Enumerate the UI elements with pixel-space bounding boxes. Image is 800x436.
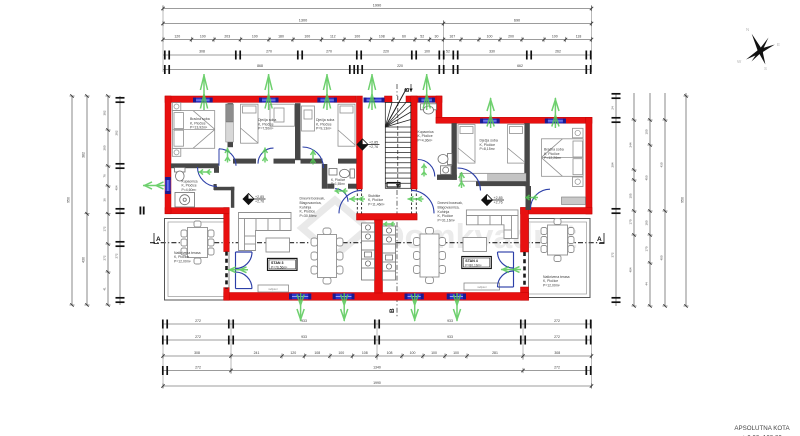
svg-text:272: 272 (195, 335, 201, 339)
svg-text:308: 308 (194, 351, 200, 355)
svg-text:270: 270 (326, 50, 332, 54)
svg-text:170: 170 (645, 246, 649, 251)
svg-text:N: N (746, 27, 749, 32)
svg-text:P=76,56m²: P=76,56m² (271, 265, 288, 269)
svg-text:P=11,46m²: P=11,46m² (368, 202, 385, 206)
svg-text:Kuhinja: Kuhinja (438, 210, 450, 214)
svg-text:P=7,50m²: P=7,50m² (258, 127, 274, 131)
svg-text:112: 112 (330, 34, 336, 38)
svg-text:404: 404 (115, 185, 119, 190)
svg-text:933: 933 (301, 335, 307, 339)
svg-text:100: 100 (487, 34, 493, 38)
svg-text:272: 272 (554, 335, 560, 339)
svg-text:950: 950 (681, 197, 685, 203)
svg-text:P=31,16m²: P=31,16m² (438, 219, 456, 223)
svg-text:P=8,15m²: P=8,15m² (480, 147, 496, 151)
svg-text:1990: 1990 (373, 4, 381, 8)
svg-text:282: 282 (115, 130, 119, 135)
svg-text:108: 108 (314, 351, 320, 355)
svg-text:308: 308 (199, 50, 205, 54)
svg-text:100: 100 (453, 351, 459, 355)
svg-text:382: 382 (103, 110, 107, 115)
svg-text:220: 220 (397, 64, 403, 68)
svg-text:STAN 3: STAN 3 (271, 261, 284, 265)
svg-text:272: 272 (115, 253, 119, 258)
svg-text:180: 180 (645, 220, 649, 225)
svg-text:220: 220 (383, 50, 389, 54)
svg-text:868: 868 (257, 64, 263, 68)
svg-text:1340: 1340 (373, 365, 381, 369)
svg-text:108: 108 (362, 351, 368, 355)
svg-text:P=4,36m²: P=4,36m² (418, 138, 434, 142)
svg-text:P=12,26m²: P=12,26m² (544, 156, 562, 160)
svg-text:60: 60 (402, 34, 406, 38)
svg-text:100: 100 (410, 351, 416, 355)
svg-text:180: 180 (278, 34, 284, 38)
svg-text:272: 272 (195, 365, 201, 369)
svg-text:100: 100 (338, 351, 344, 355)
svg-text:24: 24 (611, 106, 615, 110)
svg-text:P=9,13m²: P=9,13m² (316, 127, 332, 131)
svg-text:+2,76: +2,76 (494, 200, 503, 204)
svg-text:100: 100 (354, 34, 360, 38)
svg-text:172: 172 (103, 226, 107, 231)
svg-text:Dnevni boravak,: Dnevni boravak, (438, 201, 463, 205)
svg-text:P=80,16m²: P=80,16m² (465, 263, 482, 267)
svg-text:662: 662 (517, 64, 523, 68)
svg-text:P=12,00m²: P=12,00m² (543, 283, 561, 287)
svg-text:933: 933 (447, 335, 453, 339)
svg-text:294: 294 (611, 162, 615, 167)
svg-text:450: 450 (645, 175, 649, 180)
svg-text:P=13,92m²: P=13,92m² (190, 126, 208, 130)
svg-text:430: 430 (660, 162, 664, 167)
svg-text:108: 108 (387, 351, 393, 355)
svg-text:270: 270 (266, 50, 272, 54)
svg-text:+2,76: +2,76 (255, 199, 264, 203)
svg-text:272: 272 (554, 365, 560, 369)
svg-text:A: A (156, 236, 161, 243)
svg-text:41: 41 (103, 287, 107, 291)
svg-text:120: 120 (174, 34, 180, 38)
svg-text:100: 100 (252, 34, 258, 38)
svg-text:+2,76: +2,76 (369, 145, 378, 149)
svg-text:280: 280 (103, 145, 107, 150)
svg-text:950: 950 (67, 197, 71, 203)
svg-text:P=1,55m²: P=1,55m² (331, 182, 345, 186)
svg-text:100: 100 (424, 50, 430, 54)
svg-text:K, Pločice: K, Pločice (438, 214, 454, 218)
svg-text:P=12,00m²: P=12,00m² (174, 259, 192, 263)
svg-text:S: S (764, 66, 767, 71)
svg-text:244: 244 (629, 142, 633, 147)
svg-text:1990: 1990 (373, 381, 381, 385)
svg-text:radijator: radijator (477, 285, 487, 289)
svg-text:44: 44 (645, 282, 649, 286)
svg-text:K, Pločice: K, Pločice (300, 210, 316, 214)
svg-text:281: 281 (492, 351, 498, 355)
svg-text:170: 170 (629, 219, 633, 224)
svg-text:330: 330 (489, 50, 495, 54)
svg-text:STAN 4: STAN 4 (465, 259, 478, 263)
svg-text:Kuhinja: Kuhinja (300, 205, 312, 209)
svg-text:308: 308 (554, 351, 560, 355)
svg-text:30: 30 (435, 34, 439, 38)
svg-text:100: 100 (645, 129, 649, 134)
svg-text:262: 262 (555, 50, 561, 54)
svg-text:100: 100 (431, 351, 437, 355)
svg-text:76: 76 (103, 174, 107, 178)
svg-text:241: 241 (254, 351, 260, 355)
svg-text:100: 100 (552, 34, 558, 38)
svg-text:105: 105 (629, 193, 633, 198)
svg-text:100: 100 (200, 34, 206, 38)
svg-text:400: 400 (660, 255, 664, 260)
svg-text:Blagovaonica,: Blagovaonica, (300, 201, 322, 205)
svg-text:272: 272 (554, 319, 560, 323)
svg-text:100: 100 (304, 34, 310, 38)
svg-text:B: B (389, 308, 396, 313)
svg-text:118: 118 (576, 34, 582, 38)
svg-text:P=4,60m²: P=4,60m² (182, 188, 198, 192)
svg-text:272: 272 (195, 319, 201, 323)
svg-text:Blagovaonica,: Blagovaonica, (438, 205, 460, 209)
svg-text:272: 272 (103, 255, 107, 260)
svg-text:E: E (777, 42, 780, 47)
svg-text:52: 52 (420, 34, 424, 38)
svg-text:radijator: radijator (268, 287, 278, 291)
svg-text:200: 200 (508, 34, 514, 38)
svg-text:167: 167 (449, 34, 455, 38)
svg-text:1300: 1300 (299, 19, 307, 23)
svg-text:933: 933 (301, 319, 307, 323)
svg-text:APSOLUTNA KOTA: APSOLUTNA KOTA (734, 425, 790, 432)
svg-text:108: 108 (379, 34, 385, 38)
svg-text:372: 372 (611, 252, 615, 257)
svg-text:203: 203 (224, 34, 230, 38)
svg-text:120: 120 (290, 351, 296, 355)
svg-text:404: 404 (629, 267, 633, 272)
svg-text:Dnevni boravak,: Dnevni boravak, (300, 197, 325, 201)
svg-text:430: 430 (82, 257, 86, 263)
svg-text:52: 52 (446, 50, 450, 54)
svg-text:382: 382 (82, 152, 86, 158)
svg-text:A: A (597, 236, 602, 243)
svg-text:933: 933 (447, 319, 453, 323)
svg-text:P=30,89m²: P=30,89m² (300, 214, 318, 218)
svg-text:36: 36 (103, 198, 107, 202)
svg-text:690: 690 (514, 19, 520, 23)
